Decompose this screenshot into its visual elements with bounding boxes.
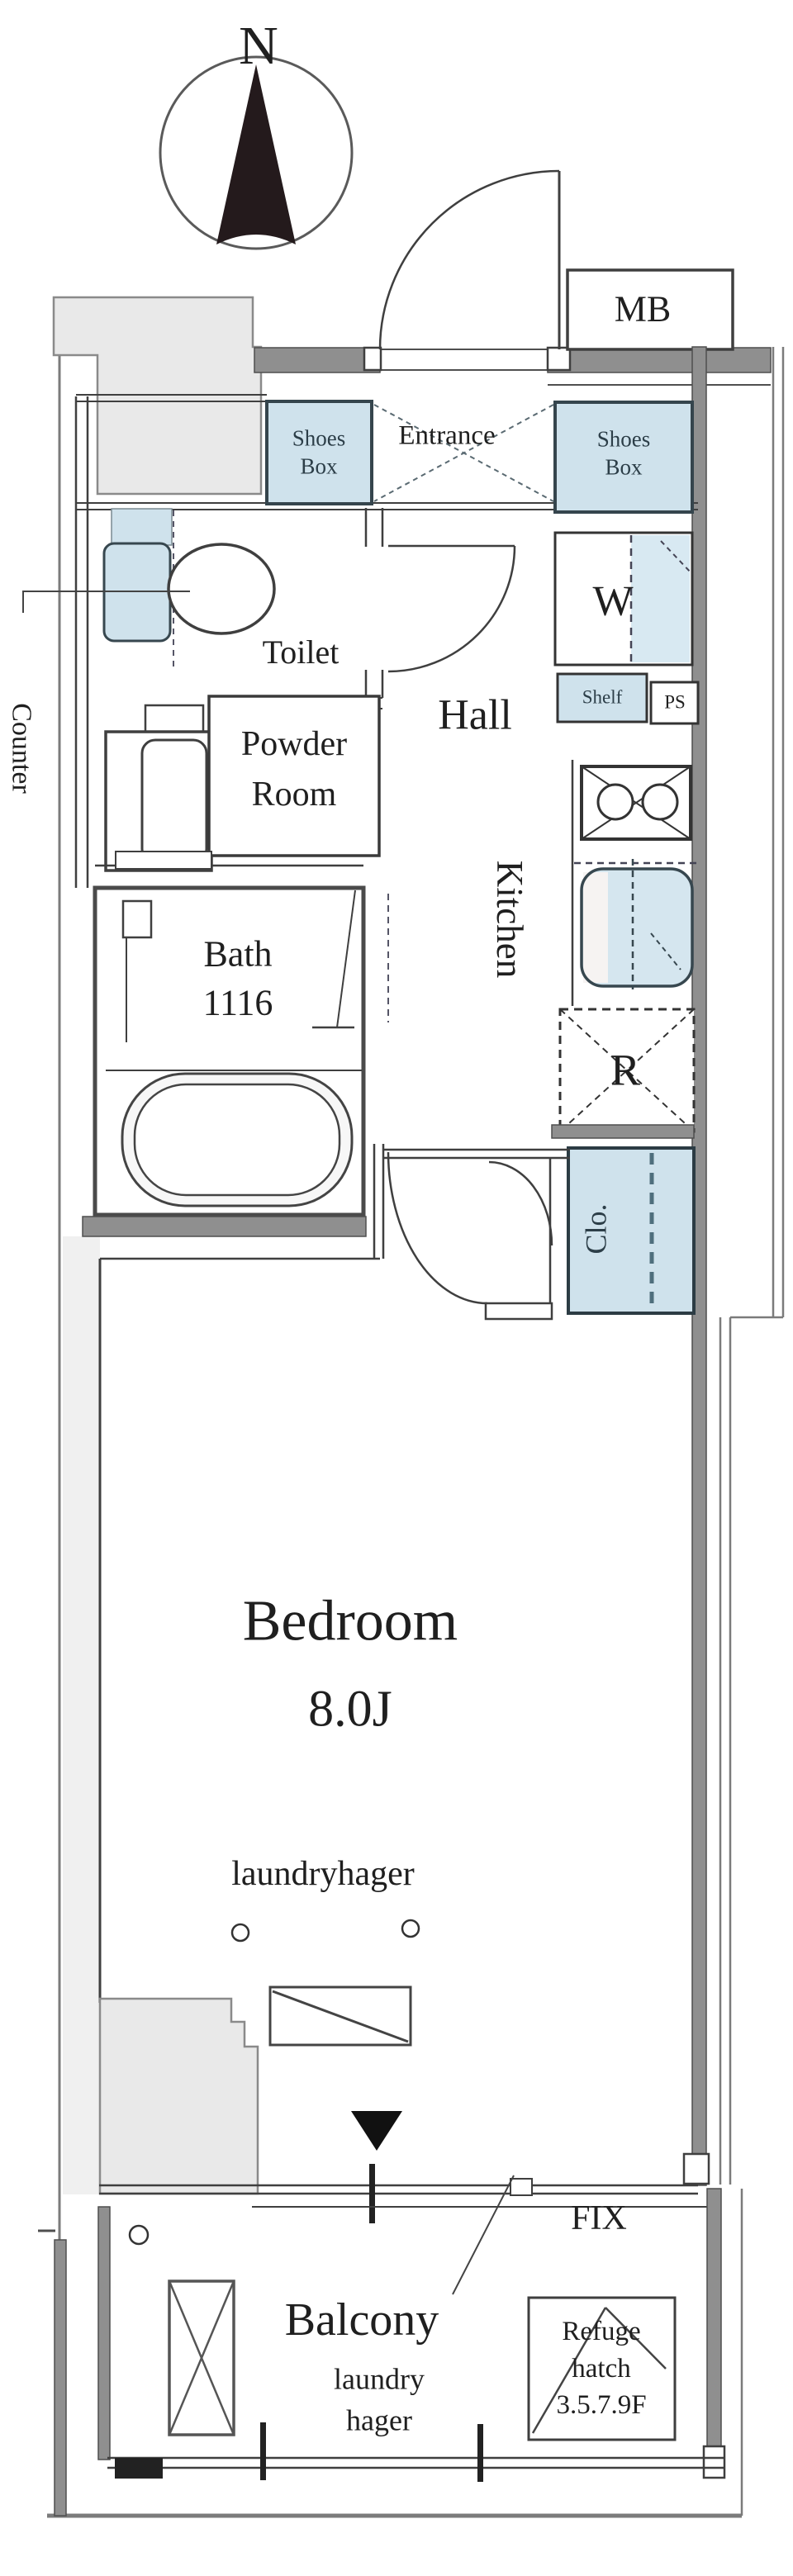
- floorplan-linework: [0, 0, 793, 2576]
- washing-machine-label: W: [592, 575, 633, 629]
- balcony-hanger-point: [130, 2226, 148, 2244]
- west-wall-bedroom-core: [63, 1236, 100, 2194]
- balcony-label: Balcony: [285, 2291, 439, 2349]
- shower-unit: [123, 901, 151, 937]
- toilet-door-arc: [388, 546, 515, 671]
- fix-window-label: FIX: [571, 2197, 627, 2241]
- bath-line2: 1116: [203, 979, 273, 1027]
- counter-shelf-symbol: [270, 1987, 411, 2045]
- counter-label: Counter: [3, 703, 39, 794]
- ac-unit-space: [169, 2281, 234, 2435]
- sink: [582, 859, 692, 989]
- kitchen-label: Kitchen: [487, 861, 533, 978]
- kitchen-counter: [572, 760, 696, 1006]
- mb-label: MB: [615, 287, 671, 332]
- compass-north-label: N: [239, 12, 278, 81]
- powder-room-line1: Powder: [241, 719, 347, 770]
- laundry-hanger-points: [232, 1920, 419, 1941]
- toilet-label: Toilet: [263, 632, 340, 673]
- bedroom-door-arc-left: [388, 1152, 487, 1303]
- bedroom-door: [374, 1144, 570, 1319]
- wall-band-r-clo: [552, 1125, 694, 1138]
- shelf-label: Shelf: [582, 686, 623, 710]
- entrance-label: Entrance: [398, 419, 495, 453]
- stove: [582, 766, 691, 839]
- floor-plan: N MB Shoes Box Entrance Shoes Box Toilet…: [0, 0, 793, 2576]
- laundry-balcony-line1: laundry: [334, 2359, 425, 2400]
- shoes-box-right-line1: Shoes: [597, 425, 651, 453]
- west-wall-upper: [76, 396, 88, 888]
- refuge-hatch-line1: Refuge: [556, 2313, 646, 2351]
- bedroom-size-label: 8.0J: [308, 1677, 392, 1742]
- powder-room-line2: Room: [241, 770, 347, 820]
- shoes-box-left-label: Shoes Box: [292, 425, 346, 481]
- shoes-box-right-label: Shoes Box: [597, 425, 651, 482]
- bedroom-label: Bedroom: [243, 1585, 458, 1658]
- closet-label: Clo.: [578, 1203, 615, 1254]
- pipe-space-label: PS: [664, 691, 686, 715]
- bedroom-door-arc-right: [489, 1162, 552, 1245]
- bath-label: Bath 1116: [203, 930, 273, 1028]
- shoes-box-right-line2: Box: [597, 453, 651, 482]
- shoes-box-left-line2: Box: [292, 453, 346, 481]
- refuge-hatch-line3: 3.5.7.9F: [556, 2387, 646, 2424]
- window-direction-marker: [351, 2111, 402, 2151]
- structural-block-bottomleft: [100, 1999, 258, 2194]
- toilet-window: [112, 509, 172, 545]
- entrance-door: [380, 171, 559, 349]
- bedroom-north-wall: [83, 1217, 380, 1259]
- washbasin-bowl: [142, 740, 207, 862]
- laundry-balcony-line2: hager: [334, 2400, 425, 2441]
- refrigerator-label: R: [610, 1042, 640, 1098]
- powder-room-door: [116, 852, 211, 869]
- laundry-hanger-balcony-label: laundry hager: [334, 2359, 425, 2442]
- toilet-bowl: [169, 544, 274, 633]
- laundry-hanger-bedroom-label: laundryhager: [231, 1853, 415, 1896]
- compass: [160, 57, 352, 249]
- window-mullion: [369, 2164, 375, 2223]
- drain-hatch: [115, 2458, 163, 2479]
- hall-label: Hall: [438, 689, 512, 742]
- refuge-hatch-line2: hatch: [556, 2351, 646, 2388]
- washbasin-backsplash: [145, 705, 203, 733]
- shoes-box-left-line1: Shoes: [292, 425, 346, 453]
- refuge-hatch-label: Refuge hatch 3.5.7.9F: [556, 2313, 646, 2424]
- bath-line1: Bath: [203, 930, 273, 979]
- powder-room-label: Powder Room: [241, 719, 347, 820]
